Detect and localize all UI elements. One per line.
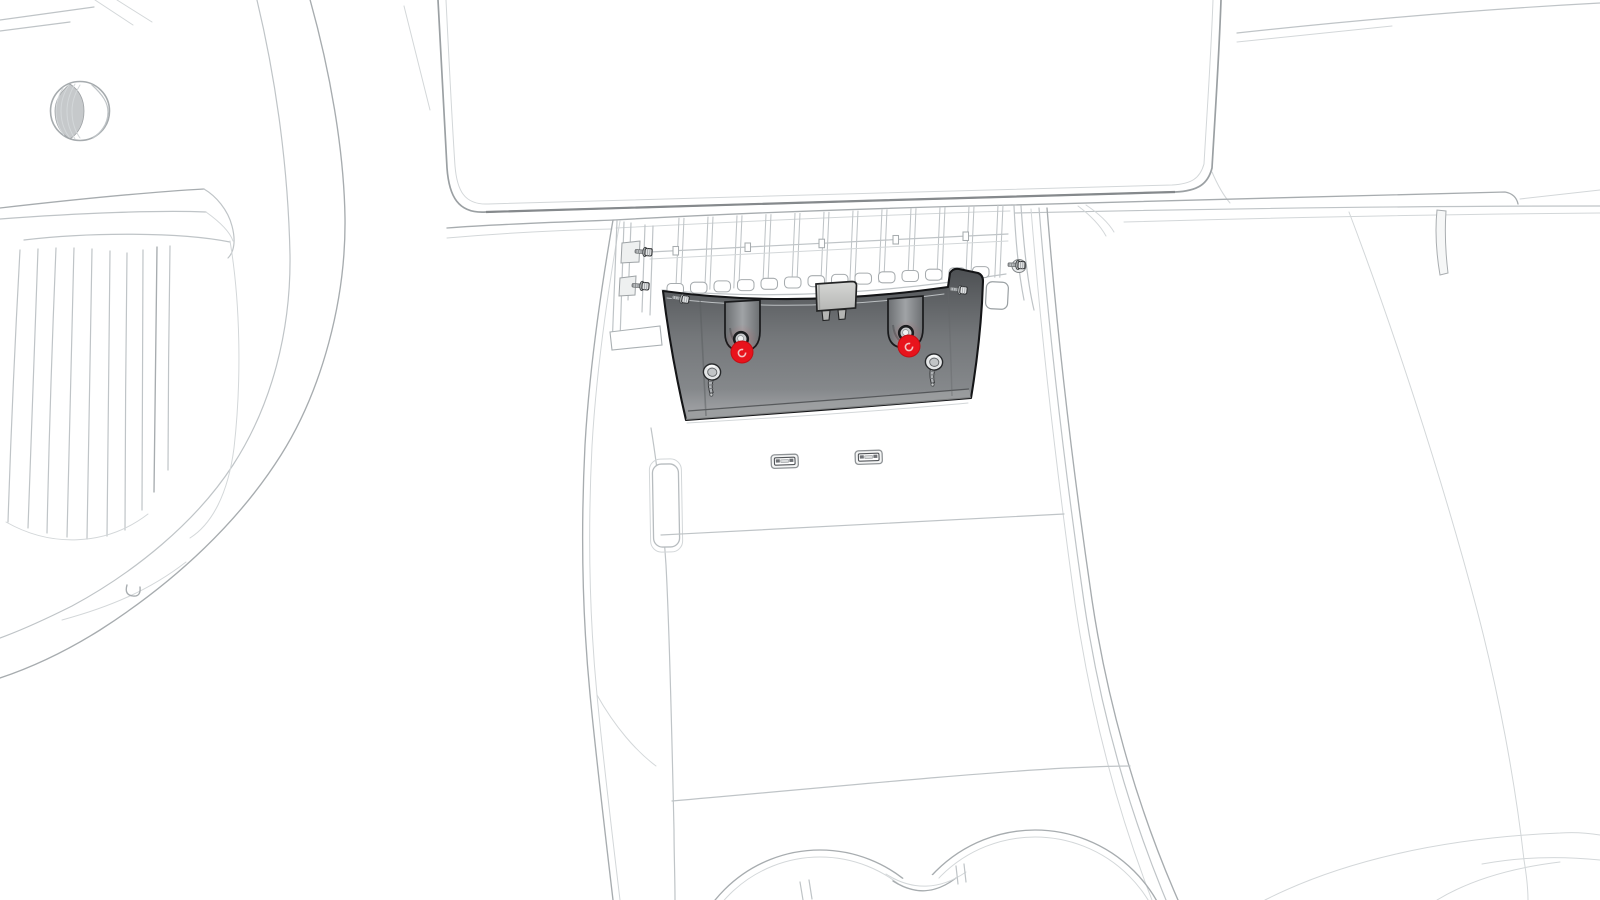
floor-mat-line — [597, 695, 656, 766]
fastener-highlight-right — [898, 335, 920, 357]
vent-cross-rail — [650, 232, 1008, 259]
column-side-contour — [190, 241, 239, 538]
steering-wheel — [0, 0, 345, 678]
right-mount-rail — [985, 206, 1034, 310]
console-floor-front-edge — [661, 514, 1064, 535]
dash-edge-center-2 — [616, 211, 1010, 228]
cup-holders — [685, 830, 1175, 900]
scroll-wheel-button — [51, 82, 110, 141]
touchscreen-outer-edge — [438, 0, 1221, 212]
vehicle-interior-line-art — [0, 0, 1600, 900]
service-illustration — [0, 0, 1600, 900]
console-left-edge-2 — [590, 221, 620, 900]
touchscreen-display — [438, 0, 1230, 212]
steering-column-knee-panel — [0, 189, 239, 540]
a-pillar-line — [404, 6, 430, 110]
windshield-base-line-2 — [1237, 26, 1392, 42]
seat-cushion-curve — [1265, 833, 1600, 900]
dash-return-lines — [1078, 205, 1114, 236]
dash-edge-right-bottom — [1015, 206, 1600, 213]
seat-cushion-curve-2 — [1437, 858, 1600, 900]
phone-dock-tray — [649, 459, 683, 553]
passenger-seat-outline — [1265, 210, 1600, 900]
dash-top-left-line — [0, 7, 94, 31]
screw-right-rail — [1008, 260, 1025, 270]
steering-rim-lower-edge — [62, 562, 186, 620]
knee-panel-bottom-edge — [6, 514, 148, 540]
seat-back-curve — [1349, 212, 1528, 900]
wiper-stalk-lines — [95, 0, 152, 25]
column-shroud-top — [0, 189, 204, 208]
left-rail-lower-bracket — [610, 326, 662, 350]
console-right-edge-2 — [1039, 208, 1166, 900]
right-clip-receptacle — [985, 281, 1008, 309]
dash-edge-left — [447, 220, 614, 228]
fastener-highlight-left — [731, 341, 753, 363]
cupholder-section-edge — [672, 766, 1130, 801]
seat-belt-anchor-trim — [1436, 210, 1448, 275]
touchscreen-corner-to-dash — [1212, 172, 1230, 203]
usb-port-left — [771, 454, 798, 468]
console-right-edge-3 — [1031, 209, 1152, 900]
console-front-bracket — [663, 269, 983, 423]
usb-port-right — [855, 450, 882, 464]
windshield-base-line — [1237, 3, 1600, 33]
column-shroud-nose — [204, 189, 234, 258]
knee-panel-ribs — [8, 246, 170, 539]
column-shroud-bottom — [0, 211, 206, 219]
dash-edge-left-2 — [447, 229, 612, 238]
steering-rim-inner — [0, 0, 290, 638]
console-right-edge — [1047, 208, 1178, 900]
knee-panel-top-edge — [24, 234, 230, 242]
